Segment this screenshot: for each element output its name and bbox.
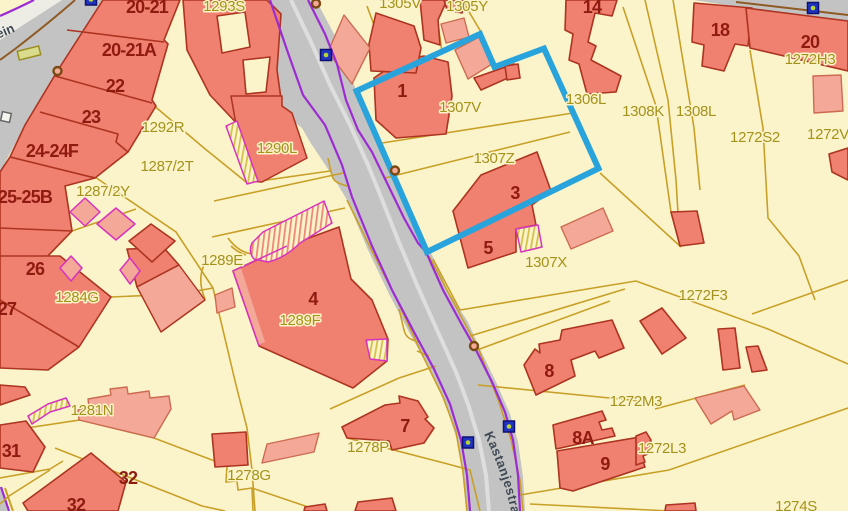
- svg-text:4: 4: [308, 289, 318, 309]
- svg-text:20-21: 20-21: [126, 0, 169, 17]
- svg-text:18: 18: [711, 20, 730, 40]
- svg-text:5: 5: [483, 238, 493, 258]
- svg-text:9: 9: [600, 454, 610, 474]
- svg-text:1307Z: 1307Z: [473, 150, 514, 167]
- svg-text:1: 1: [397, 81, 407, 101]
- svg-text:1274S: 1274S: [775, 498, 817, 511]
- svg-text:31: 31: [2, 441, 21, 461]
- svg-text:1307X: 1307X: [525, 254, 567, 271]
- svg-text:7: 7: [400, 416, 410, 436]
- svg-text:1272L3: 1272L3: [638, 440, 686, 457]
- svg-text:1308K: 1308K: [622, 103, 664, 120]
- svg-text:1293S: 1293S: [203, 0, 245, 15]
- svg-text:20: 20: [801, 32, 820, 52]
- svg-text:1305Y: 1305Y: [446, 0, 488, 15]
- svg-text:8: 8: [544, 361, 554, 381]
- svg-text:1284G: 1284G: [55, 289, 99, 306]
- svg-text:3: 3: [510, 183, 520, 203]
- svg-text:1290L: 1290L: [257, 140, 297, 157]
- svg-text:1272V2: 1272V2: [807, 126, 848, 143]
- svg-text:23: 23: [82, 107, 101, 127]
- svg-text:1287/2T: 1287/2T: [141, 158, 194, 175]
- svg-text:1289F: 1289F: [279, 312, 320, 329]
- svg-text:32: 32: [67, 495, 86, 511]
- svg-text:1278P: 1278P: [347, 439, 389, 456]
- svg-text:1292R: 1292R: [142, 119, 185, 136]
- svg-text:1272F3: 1272F3: [678, 287, 727, 304]
- svg-text:8A: 8A: [572, 428, 594, 448]
- svg-text:27: 27: [0, 299, 17, 319]
- svg-text:26: 26: [26, 259, 45, 279]
- svg-text:22: 22: [106, 76, 125, 96]
- svg-text:20-21A: 20-21A: [102, 40, 157, 60]
- svg-text:1272M3: 1272M3: [610, 393, 662, 410]
- svg-text:1272H3: 1272H3: [785, 51, 836, 68]
- svg-text:25-25B: 25-25B: [0, 187, 53, 207]
- svg-text:1281N: 1281N: [71, 402, 114, 419]
- svg-text:24-24F: 24-24F: [26, 141, 79, 161]
- svg-text:1307V: 1307V: [439, 99, 481, 116]
- svg-text:1308L: 1308L: [676, 103, 716, 120]
- svg-text:1306L: 1306L: [566, 91, 606, 108]
- svg-text:14: 14: [583, 0, 602, 17]
- svg-text:1278G: 1278G: [227, 467, 271, 484]
- svg-text:1272S2: 1272S2: [730, 129, 780, 146]
- svg-text:1287/2Y: 1287/2Y: [76, 183, 130, 200]
- svg-text:1289E: 1289E: [201, 252, 243, 269]
- svg-text:1305V: 1305V: [379, 0, 421, 12]
- svg-text:32: 32: [119, 468, 138, 488]
